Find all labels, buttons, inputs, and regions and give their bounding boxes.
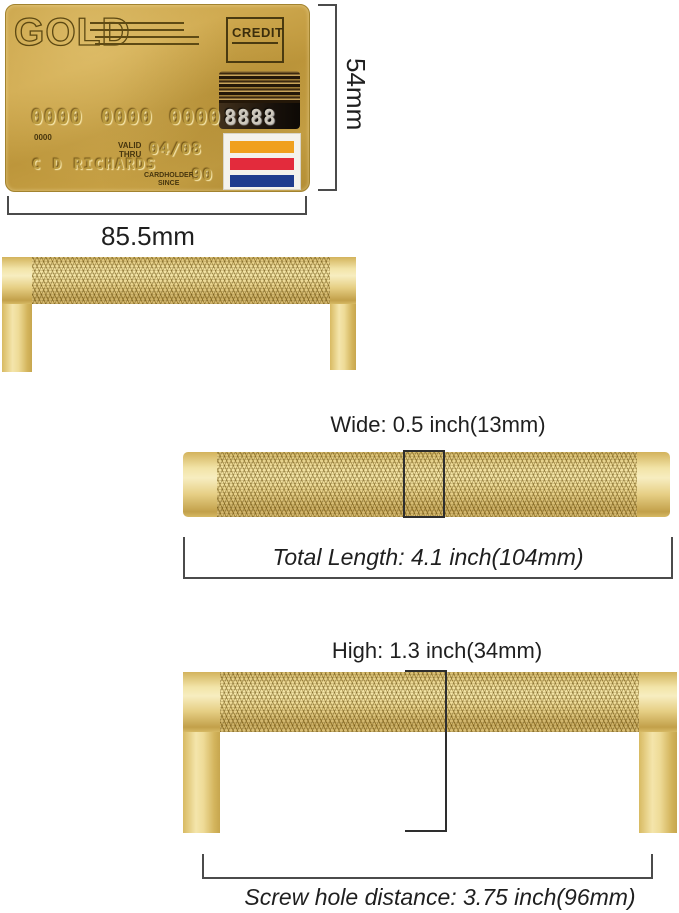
bar-end-cap-right [637,452,670,517]
card-number-group: 0000 [101,105,153,129]
handle-photo [2,257,356,372]
card-number-group-stripe: 8888 [224,105,276,129]
cardholder-since-value: 90 [192,165,213,184]
handle-knurl-bar [220,672,639,732]
card-deco-line [95,36,199,38]
flag-stripe-bottom [230,175,294,187]
valid-thru-value: 04/08 [149,139,202,158]
height-marker [405,670,447,672]
card-deco-line [90,22,184,24]
total-length-bracket [183,537,185,579]
card-width-bracket [7,213,307,215]
bar-end-right [330,257,356,304]
card-number-group: 0000 [169,105,221,129]
card-height-bracket [318,189,337,191]
screw-distance-bracket [202,877,653,879]
bar-end-cap-left [183,452,217,517]
card-deco-line [95,43,199,45]
total-length-label: Total Length: 4.1 inch(104mm) [228,544,628,571]
width-label: Wide: 0.5 inch(13mm) [238,412,638,438]
card-width-label: 85.5mm [58,221,238,252]
height-label: High: 1.3 inch(34mm) [237,638,637,664]
flag-box [223,133,301,190]
height-marker [405,830,447,832]
total-length-bracket [671,537,673,579]
screw-distance-bracket [202,854,204,879]
total-length-bracket [183,577,673,579]
card-height-bracket [335,4,337,191]
credit-label: CREDIT [232,25,278,44]
card-number-group: 0000 [31,105,83,129]
card-width-bracket [305,196,307,215]
valid-thru-label-line1: VALID [118,141,141,150]
handle-knurl-bar [32,257,330,304]
bar-end-right [639,672,677,732]
card-height-label: 54mm [340,58,371,130]
cardholder-name: C D RICHARDS [32,157,157,173]
magnetic-patch-streaks [219,71,300,103]
credit-card: GOLD CREDIT 0000 0000 0000 8888 0000 VAL… [5,4,310,192]
flag-stripe-middle [230,158,294,170]
credit-box: CREDIT [226,17,284,63]
bottom-handle [183,672,677,833]
screw-distance-label: Screw hole distance: 3.75 inch(96mm) [240,884,640,911]
product-dimension-diagram: GOLD CREDIT 0000 0000 0000 8888 0000 VAL… [0,0,679,913]
card-brand-text: GOLD [14,11,131,55]
flag-stripe-top [230,141,294,153]
screw-distance-bracket [651,854,653,879]
small-card-number: 0000 [34,133,52,142]
bar-end-left [183,672,220,732]
bar-end-left [2,257,32,304]
height-marker [445,670,447,831]
card-deco-line [90,29,184,31]
width-marker [403,450,445,518]
cardholder-since-label-line2: SINCE [158,179,179,188]
